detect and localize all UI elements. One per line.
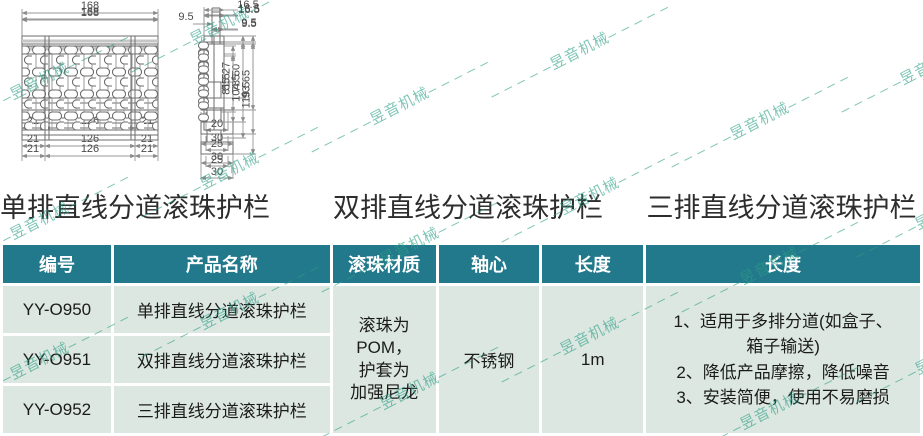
table-header-row: 编号 产品名称 滚珠材质 轴心 长度 长度 — [3, 245, 920, 283]
cell-code-0: YY-O950 — [3, 286, 111, 333]
cell-material: 滚珠为 POM， 护套为 加强尼龙 — [333, 286, 436, 433]
dim-label: 126 — [81, 143, 99, 155]
table-row: YY-O950 单排直线分道滚珠护栏 滚珠为 POM， 护套为 加强尼龙 不锈钢… — [3, 286, 920, 333]
cell-name-0: 单排直线分道滚珠护栏 — [114, 286, 330, 333]
header-code: 编号 — [3, 245, 111, 283]
product-spec-table: 编号 产品名称 滚珠材质 轴心 长度 长度 YY-O950 单排直线分道滚珠护栏… — [0, 242, 923, 436]
dim-label: 16.5 — [237, 0, 258, 11]
caption-triple-row: 三排直线分道滚珠护栏 — [640, 186, 923, 225]
cell-name-2: 三排直线分道滚珠护栏 — [114, 386, 330, 433]
dim-label: 21 — [141, 143, 153, 155]
header-product-name: 产品名称 — [114, 245, 330, 283]
dim-label: 9.5 — [178, 11, 193, 23]
header-axis: 轴心 — [439, 245, 540, 283]
header-length: 长度 — [542, 245, 643, 283]
header-notes: 长度 — [646, 245, 920, 283]
watermark: – – – – –昱音机械– – – – – — [836, 11, 923, 120]
header-ball-material: 滚珠材质 — [333, 245, 436, 283]
dim-label: 168 — [81, 0, 99, 12]
caption-single-row: 单排直线分道滚珠护栏 — [0, 186, 302, 225]
watermark: – – – – –昱音机械– – – – – — [306, 51, 493, 160]
cell-name-1: 双排直线分道滚珠护栏 — [114, 336, 330, 383]
catalog-page: 168 21 126 21 16.5 9.5 27 50 65 20 30 — [0, 0, 923, 436]
dim-label: 119.5 — [241, 82, 253, 109]
caption-double-row: 双排直线分道滚珠护栏 — [318, 186, 618, 225]
cell-notes: 1、适用于多排分道(如盒子、 箱子输送) 2、降低产品摩擦，降低噪音 3、安装简… — [646, 286, 920, 433]
cell-code-2: YY-O952 — [3, 386, 111, 433]
cell-axis: 不锈钢 — [439, 286, 540, 433]
cell-code-1: YY-O951 — [3, 336, 111, 383]
dim-label: 21 — [27, 143, 39, 155]
watermark: – – – – –昱音机械– – – – – — [486, 0, 673, 105]
cell-length: 1m — [542, 286, 643, 433]
dim-label: 30 — [211, 166, 223, 178]
drawing-triple-row: 168 21 126 21 16.5 9.5 81.5 104.5 119.5 … — [0, 0, 295, 190]
watermark: – – – – –昱音机械– – – – – — [666, 66, 853, 175]
dim-label: 25 — [211, 154, 223, 166]
